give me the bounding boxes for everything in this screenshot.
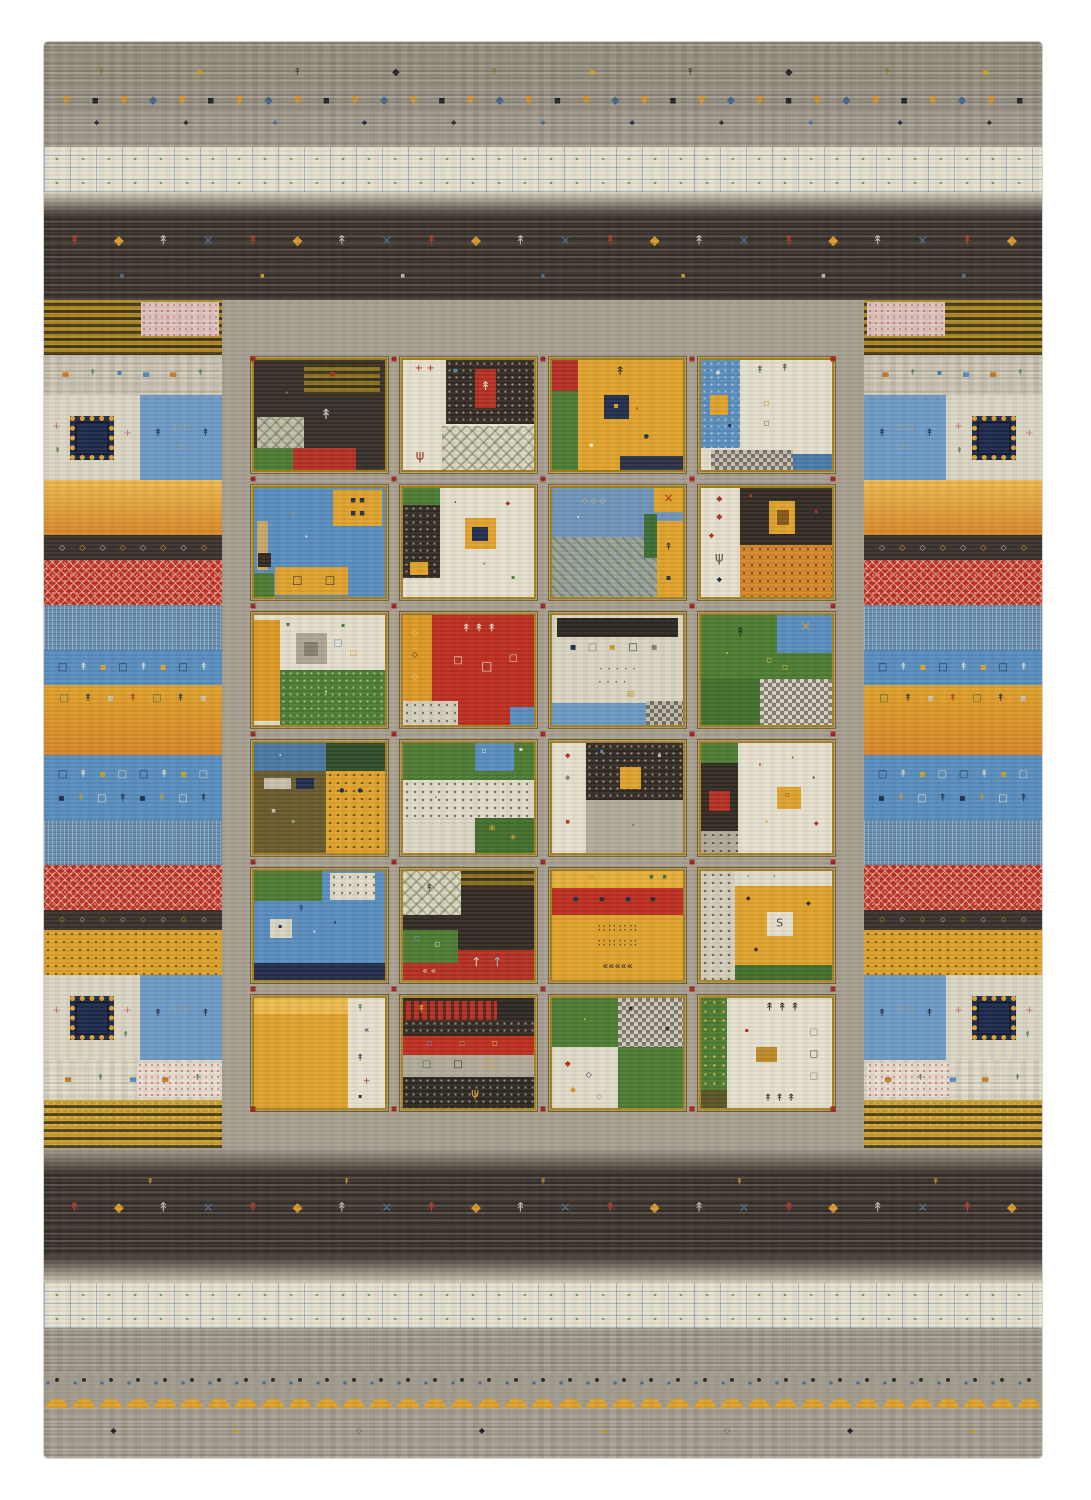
cell-patch bbox=[410, 562, 428, 575]
motif-glyph: ↟ bbox=[925, 429, 933, 439]
motif-glyph: ↟ bbox=[605, 234, 616, 247]
cell-patch bbox=[701, 871, 735, 981]
motif-glyph: ▪ bbox=[233, 1427, 238, 1435]
motif-glyph: + bbox=[123, 1006, 131, 1016]
cell-patch bbox=[254, 573, 274, 597]
motif-glyph: ◇ bbox=[899, 544, 905, 552]
rug-cell-r5c4: S··◆◆◆ bbox=[699, 869, 834, 983]
motif-glyph: ◆ bbox=[471, 234, 481, 247]
motif-glyph: ↟ bbox=[122, 1031, 129, 1039]
cell-motif: ↟ bbox=[480, 380, 490, 392]
rug-band bbox=[864, 560, 1042, 605]
motif-glyph: ◇ bbox=[100, 544, 106, 552]
cell-motif: + bbox=[363, 1077, 371, 1086]
motif-glyph: ↟ bbox=[158, 234, 169, 247]
motif-glyph: ▼ bbox=[178, 95, 186, 106]
motif-glyph: ▼ bbox=[409, 95, 417, 106]
motif-glyph: × bbox=[917, 1201, 928, 1214]
motif-glyph: ◇ bbox=[181, 917, 186, 924]
motif-glyph: ↟ bbox=[200, 663, 208, 673]
cell-motif: ▪ bbox=[666, 574, 671, 582]
cell-motif: ▪ bbox=[511, 575, 515, 581]
motif-glyph: ↟ bbox=[158, 794, 166, 804]
cell-motif: ◆ bbox=[565, 753, 570, 760]
cell-motif: · bbox=[583, 1013, 587, 1027]
grid-corner-dot bbox=[831, 357, 836, 362]
cell-motif: □ bbox=[481, 660, 492, 672]
cell-patch bbox=[258, 553, 271, 566]
motif-glyph: × bbox=[560, 234, 571, 247]
motif-glyph: ↟ bbox=[949, 694, 957, 704]
band-accent-patch bbox=[867, 1062, 949, 1097]
motif-glyph: ▄ bbox=[170, 369, 176, 377]
motif-glyph: ◇ bbox=[981, 917, 986, 924]
grid-corner-dot bbox=[541, 604, 546, 609]
cell-patch bbox=[701, 998, 727, 1090]
motif-glyph: × bbox=[203, 1201, 214, 1214]
rug-band: ▄↟▄▄↟ bbox=[864, 1060, 1042, 1100]
motif-glyph: ∷ bbox=[179, 443, 185, 453]
cell-motif: ▪ bbox=[625, 896, 631, 905]
cell-motif: ◆ bbox=[570, 1086, 576, 1094]
rug-band: □↟▪□↟▪□↟ bbox=[44, 650, 222, 685]
motif-glyph: ↟ bbox=[1017, 369, 1024, 377]
motif-glyph: □ bbox=[972, 694, 981, 704]
motif-glyph: ↟ bbox=[201, 1009, 209, 1019]
rug-cell-r2c2: ◆·▪· bbox=[401, 486, 536, 600]
motif-glyph: ◆ bbox=[362, 119, 367, 126]
cell-motif: ▪ bbox=[814, 509, 818, 515]
motif-glyph: ◆ bbox=[958, 95, 966, 106]
cell-motif: □ bbox=[809, 1051, 818, 1060]
motif-glyph: □ bbox=[152, 694, 161, 704]
motif-glyph: ◇ bbox=[1021, 917, 1026, 924]
motif-glyph: ▪ bbox=[117, 369, 122, 377]
cell-patch bbox=[403, 1077, 534, 1108]
cell-patch bbox=[740, 545, 832, 598]
motif-glyph: ▄ bbox=[990, 369, 996, 377]
rug-band bbox=[44, 865, 222, 910]
cell-motif: ↟ ↟ ↟ bbox=[764, 1094, 796, 1104]
cell-motif: ▪ bbox=[453, 367, 458, 374]
motif-glyph: ↟ bbox=[69, 234, 80, 247]
motif-glyph: ◆ bbox=[114, 234, 124, 247]
motif-glyph: ↟ bbox=[160, 770, 168, 780]
cell-motif: ↟ bbox=[356, 1054, 364, 1063]
cell-patch bbox=[760, 679, 832, 725]
motif-glyph: ↟ bbox=[336, 234, 347, 247]
rug-band bbox=[44, 147, 1042, 192]
rug-left-column: ▄↟▪▄▄↟+↟+↟↟∷ ∷∷◇◇◇◇◇◇◇◇□↟▪□↟▪□↟□↟▪↟□↟▪□↟… bbox=[44, 300, 222, 1148]
rug-top-border: ↟▪↟◆↟▪↟◆↟▪▼▪▼◆▼▪▼◆▼▪▼◆▼▪▼◆▼▪▼◆▼▪▼◆▼▪▼◆▼▪… bbox=[44, 42, 1042, 300]
rug-band bbox=[864, 300, 1042, 355]
motif-glyph: ◇ bbox=[960, 544, 966, 552]
motif-glyph: □ bbox=[938, 770, 947, 780]
cell-motif: ◆ bbox=[709, 532, 714, 539]
cell-motif: ▫ bbox=[492, 1040, 498, 1049]
grid-corner-dot bbox=[251, 732, 256, 737]
motif-glyph: ↟ bbox=[77, 794, 85, 804]
cell-motif: □ bbox=[292, 574, 302, 585]
cell-patch bbox=[403, 780, 534, 817]
motif-glyph: + bbox=[1025, 429, 1033, 439]
rug-band bbox=[44, 605, 222, 650]
cell-motif: ↟ ↟ ↟ bbox=[765, 1002, 800, 1013]
rug-band bbox=[864, 820, 1042, 865]
cell-motif: ▫ bbox=[414, 934, 420, 943]
cell-motif: · bbox=[324, 684, 329, 700]
rug-band bbox=[44, 480, 222, 535]
medallion-panel: ++↟ bbox=[946, 975, 1042, 1060]
grid-corner-dot bbox=[392, 357, 397, 362]
motif-glyph: ▼ bbox=[929, 95, 937, 106]
motif-glyph: ↟ bbox=[176, 694, 184, 704]
cell-patch bbox=[403, 488, 440, 506]
cell-motif: ψ bbox=[715, 551, 724, 564]
motif-glyph: □ bbox=[118, 663, 127, 673]
motif-row: □↟▪□↟▪□↟ bbox=[44, 663, 222, 673]
motif-glyph: ↟ bbox=[343, 1178, 351, 1187]
grid-corner-dot bbox=[831, 476, 836, 481]
motif-glyph: ◇ bbox=[181, 544, 187, 552]
motif-glyph: ▼ bbox=[235, 95, 243, 106]
cell-motif: ∷ ∷ ∷ ∷ bbox=[598, 938, 636, 949]
cell-motif: ≋ bbox=[626, 689, 635, 700]
rug-cell-r5c1: ▪··↟ bbox=[252, 869, 387, 983]
cell-motif: ● bbox=[339, 788, 344, 794]
grid-corner-dot bbox=[392, 987, 397, 992]
grid-corner-dot bbox=[831, 732, 836, 737]
motif-glyph: ↟ bbox=[878, 1009, 886, 1019]
motif-glyph: × bbox=[381, 234, 392, 247]
motif-glyph: ∷ ∷ bbox=[174, 1006, 190, 1016]
cell-patch bbox=[646, 701, 683, 725]
motif-glyph: ↟ bbox=[736, 1178, 744, 1187]
rug-band: ◇◇◇◇◇◇◇◇ bbox=[44, 910, 222, 930]
cell-motif: ▫ bbox=[782, 663, 788, 672]
motif-glyph: ◇ bbox=[140, 544, 146, 552]
cell-motif: ▫ bbox=[648, 1015, 653, 1022]
medallion-band: +↟+↟↟∷ ∷∷ bbox=[44, 395, 222, 480]
motif-row: ▪▪▪▪▪▪▪ bbox=[44, 273, 1042, 280]
motif-row: □↟▪□□↟▪□ bbox=[44, 770, 222, 780]
motif-glyph: ↟ bbox=[197, 369, 204, 377]
navy-square-medallion bbox=[70, 416, 114, 460]
cell-patch bbox=[510, 707, 534, 725]
motif-glyph: ◇ bbox=[920, 917, 925, 924]
motif-glyph: ◆ bbox=[987, 119, 992, 126]
motif-glyph: ◇ bbox=[1021, 544, 1027, 552]
motif-row: ▪↟□↟▪↟□↟ bbox=[864, 794, 1042, 804]
motif-glyph: □ bbox=[178, 663, 187, 673]
motif-glyph: ↟ bbox=[79, 663, 87, 673]
rug-band: □↟▪□↟▪□↟ bbox=[864, 650, 1042, 685]
cell-motif: ▪ bbox=[286, 622, 290, 628]
motif-glyph: ◆ bbox=[540, 119, 545, 126]
cell-motif: · bbox=[291, 507, 296, 523]
motif-glyph: ◆ bbox=[727, 95, 735, 106]
cell-motif: · bbox=[811, 770, 816, 786]
cell-patch bbox=[620, 456, 683, 469]
cell-motif: · bbox=[576, 511, 580, 525]
motif-glyph: ◆ bbox=[650, 1201, 660, 1214]
motif-glyph: + bbox=[954, 422, 962, 432]
motif-glyph: ↟ bbox=[336, 1201, 347, 1214]
rug-cell-r3c2: ↟ ↟ ↟□□□◇◇◇ bbox=[401, 613, 536, 727]
image-caption: Photograph of a hand-knotted wool Gabbeh… bbox=[0, 0, 1, 1]
motif-glyph: ↟ bbox=[200, 794, 208, 804]
motif-glyph: ◆ bbox=[1007, 234, 1017, 247]
rug-band: □↟▪□□↟▪□▪↟□↟▪↟□↟ bbox=[864, 755, 1042, 820]
rug-band: ◇◇◇◇◇◇◇◇ bbox=[44, 535, 222, 560]
cell-motif: ↟ bbox=[425, 883, 434, 894]
motif-glyph: □ bbox=[998, 663, 1007, 673]
motif-glyph: ↟ bbox=[248, 1201, 259, 1214]
rug-cell-r2c4: ◆◆◆ψ◆▪▪ bbox=[699, 486, 834, 600]
cell-motif: ◇ bbox=[412, 673, 418, 681]
cell-patch bbox=[472, 527, 488, 541]
motif-glyph: ▪ bbox=[937, 369, 942, 377]
rug-patchwork-grid: ↟▪·↟++ψ▪▪↟●●·↟↟▫▫▪▪▪ ▪▪ ▪□□··◆·▪·×◇ ◇ ◇↟… bbox=[252, 358, 834, 1110]
motif-row: □↟▪□↟▪□↟ bbox=[864, 663, 1042, 673]
motif-glyph: ▼ bbox=[640, 95, 648, 106]
cell-patch bbox=[293, 448, 356, 470]
grid-corner-dot bbox=[690, 859, 695, 864]
cell-motif: · bbox=[757, 757, 762, 773]
rug-band bbox=[44, 1328, 1042, 1373]
cell-motif: ◆ bbox=[746, 896, 751, 902]
motif-glyph: ◆ bbox=[392, 68, 400, 78]
cell-patch bbox=[254, 448, 293, 470]
grid-corner-dot bbox=[541, 732, 546, 737]
motif-glyph: ↟ bbox=[686, 68, 694, 78]
motif-glyph: ↟ bbox=[1014, 1074, 1021, 1082]
cell-motif: ▪ bbox=[570, 643, 577, 653]
cell-motif: ▪ bbox=[749, 493, 753, 499]
grid-corner-dot bbox=[690, 1107, 695, 1112]
rug-cell-r6c3: ◆◇◆◇▪▫▪· bbox=[550, 996, 685, 1110]
cell-motif: ◆ bbox=[814, 821, 819, 827]
motif-glyph: ▪ bbox=[107, 694, 114, 704]
cell-motif: · bbox=[635, 401, 640, 417]
motif-glyph: □ bbox=[97, 794, 106, 804]
cell-patch bbox=[620, 767, 641, 789]
motif-glyph: ↟ bbox=[139, 663, 147, 673]
rug-band: ◇◇◇◇◇◇◇◇ bbox=[864, 910, 1042, 930]
motif-glyph: ↟ bbox=[883, 68, 891, 78]
cell-patch bbox=[701, 1090, 727, 1108]
motif-glyph: □ bbox=[178, 794, 187, 804]
motif-glyph: ↟ bbox=[129, 694, 137, 704]
grid-corner-dot bbox=[831, 1107, 836, 1112]
motif-glyph: ↟ bbox=[84, 694, 92, 704]
cell-motif: ● bbox=[589, 443, 593, 448]
motif-glyph: ◆ bbox=[611, 95, 619, 106]
motif-glyph: ▼ bbox=[525, 95, 533, 106]
cell-motif: ↟ bbox=[756, 366, 764, 376]
rug-band: □↟▪↟□↟▪ bbox=[864, 685, 1042, 755]
motif-glyph: □ bbox=[917, 794, 926, 804]
cell-patch bbox=[552, 360, 578, 391]
cell-motif: ψ bbox=[471, 1087, 479, 1099]
motif-glyph: ▪ bbox=[139, 794, 146, 804]
rug-band: ◇◇◇◇◇◇◇◇ bbox=[864, 535, 1042, 560]
motif-row: ↟▪↟◆↟▪↟◆↟▪ bbox=[44, 68, 1042, 78]
cell-patch bbox=[552, 391, 578, 470]
motif-glyph: □ bbox=[959, 770, 968, 780]
cell-motif: ▪ bbox=[341, 623, 345, 629]
cell-patch bbox=[304, 364, 380, 395]
motif-glyph: ▪ bbox=[878, 794, 885, 804]
motif-glyph: ▪ bbox=[196, 68, 203, 78]
cell-motif: ▫ bbox=[434, 941, 440, 950]
cell-motif: + bbox=[415, 364, 423, 374]
grid-corner-dot bbox=[251, 604, 256, 609]
motif-row: ◇◇◇◇◇◇◇◇ bbox=[864, 917, 1042, 924]
cell-motif: + bbox=[426, 364, 434, 374]
motif-glyph: □ bbox=[938, 663, 947, 673]
grid-corner-dot bbox=[831, 604, 836, 609]
motif-glyph: ↟ bbox=[293, 68, 301, 78]
cell-motif: ◆ bbox=[754, 947, 759, 953]
motif-row: ◇◇◇◇◇◇◇◇ bbox=[44, 544, 222, 552]
motif-glyph: ▪ bbox=[1000, 770, 1007, 780]
grid-corner-dot bbox=[251, 859, 256, 864]
cell-motif: ▪ bbox=[728, 423, 732, 429]
cell-patch bbox=[280, 670, 385, 725]
grid-corner-dot bbox=[251, 476, 256, 481]
medallion-band: ++↟↟↟∷ ∷ bbox=[44, 975, 222, 1060]
cell-patch bbox=[644, 514, 657, 558]
cell-motif: · bbox=[790, 750, 795, 766]
motif-glyph: ▼ bbox=[120, 95, 128, 106]
cell-motif: ▪ ▪ bbox=[350, 496, 365, 505]
motif-glyph: ▼ bbox=[62, 95, 70, 106]
motif-glyph: ◆ bbox=[110, 1427, 116, 1435]
motif-glyph: ↟ bbox=[872, 234, 883, 247]
grid-corner-dot bbox=[251, 357, 256, 362]
rug-band bbox=[44, 1373, 1042, 1408]
cell-motif: · bbox=[725, 647, 729, 661]
grid-corner-dot bbox=[541, 476, 546, 481]
motif-glyph: ◇ bbox=[1001, 544, 1007, 552]
motif-glyph: ↟ bbox=[978, 794, 986, 804]
cell-motif: ◇ ◇ ◇ bbox=[582, 497, 606, 505]
cell-motif: ▪ bbox=[330, 371, 336, 380]
motif-glyph: ▪ bbox=[970, 1427, 975, 1435]
motif-glyph: ◇ bbox=[356, 1427, 362, 1435]
medallion-panel: +↟+ bbox=[946, 395, 1042, 480]
motif-glyph: □ bbox=[58, 663, 67, 673]
motif-glyph: ↟ bbox=[89, 369, 96, 377]
rug-band bbox=[44, 1148, 1042, 1173]
cell-patch bbox=[254, 871, 322, 902]
motif-glyph: □ bbox=[59, 694, 68, 704]
motif-glyph: ◇ bbox=[940, 917, 945, 924]
motif-glyph: ◆ bbox=[897, 119, 902, 126]
motif-glyph: ◆ bbox=[1007, 1201, 1017, 1214]
motif-glyph: ◆ bbox=[380, 95, 388, 106]
motif-glyph: ◇ bbox=[879, 544, 885, 552]
motif-glyph: ↟ bbox=[69, 1201, 80, 1214]
cell-patch bbox=[254, 998, 348, 1013]
motif-glyph: ◇ bbox=[980, 544, 986, 552]
grid-corner-dot bbox=[541, 859, 546, 864]
motif-row: □↟▪↟□↟▪ bbox=[864, 694, 1042, 704]
motif-glyph: ◇ bbox=[161, 917, 166, 924]
rug-band: ▄↟▄▄↟ bbox=[44, 1060, 222, 1100]
cell-motif: ««««« bbox=[602, 962, 633, 972]
cell-motif: ▫ bbox=[482, 747, 487, 755]
motif-glyph: ▪ bbox=[919, 770, 926, 780]
cell-motif: ▫ bbox=[459, 1040, 465, 1049]
motif-glyph: ◆ bbox=[847, 1427, 853, 1435]
rug-band: ▄↟▪▄▄↟ bbox=[44, 355, 222, 395]
cell-motif: ▪ bbox=[745, 1028, 749, 1034]
motif-glyph: ↟ bbox=[939, 794, 947, 804]
grid-corner-dot bbox=[392, 1107, 397, 1112]
motif-glyph: × bbox=[917, 234, 928, 247]
grid-corner-dot bbox=[690, 604, 695, 609]
grid-corner-dot bbox=[392, 476, 397, 481]
motif-glyph: ↟ bbox=[248, 234, 259, 247]
motif-glyph: × bbox=[738, 234, 749, 247]
cell-patch bbox=[254, 743, 326, 772]
rug-cell-r4c3: ▪▪◆◆▪· bbox=[550, 741, 685, 855]
grid-corner-dot bbox=[251, 1107, 256, 1112]
motif-glyph: ▼ bbox=[582, 95, 590, 106]
cell-motif: ▫ bbox=[763, 419, 770, 429]
motif-glyph: ↟ bbox=[694, 1201, 705, 1214]
cell-motif: □ bbox=[485, 1060, 494, 1070]
cell-patch bbox=[557, 618, 678, 638]
motif-glyph: ▪ bbox=[982, 68, 989, 78]
motif-row: □↟▪↟□↟▪ bbox=[44, 694, 222, 704]
motif-glyph: ◆ bbox=[630, 119, 635, 126]
rug-band: ◆◆◆◆◆◆◆◆◆◆◆ bbox=[44, 112, 1042, 147]
gabbeh-rug: ↟▪↟◆↟▪↟◆↟▪▼▪▼◆▼▪▼◆▼▪▼◆▼▪▼◆▼▪▼◆▼▪▼◆▼▪▼◆▼▪… bbox=[44, 42, 1042, 1458]
motif-glyph: ▪ bbox=[1020, 694, 1027, 704]
motif-glyph: ↟ bbox=[980, 770, 988, 780]
cell-patch bbox=[275, 567, 348, 596]
cell-motif: ▪ bbox=[573, 896, 579, 905]
cell-motif: · bbox=[304, 529, 309, 545]
motif-glyph: ↟ bbox=[154, 1009, 162, 1019]
motif-glyph: ▪ bbox=[260, 273, 265, 280]
motif-glyph: ◆ bbox=[808, 119, 813, 126]
cell-motif: ▪ bbox=[271, 807, 276, 814]
cell-motif: ↟ bbox=[664, 543, 672, 553]
cell-motif: ▪ bbox=[649, 874, 654, 881]
navy-square-medallion bbox=[70, 996, 114, 1040]
motif-glyph: ↟ bbox=[904, 694, 912, 704]
motif-glyph: ↟ bbox=[956, 447, 963, 455]
navy-square-medallion bbox=[972, 996, 1016, 1040]
cell-patch bbox=[348, 998, 385, 1108]
motif-glyph: ◇ bbox=[900, 917, 905, 924]
motif-glyph: × bbox=[381, 1201, 392, 1214]
cell-motif: ↟ bbox=[356, 1005, 364, 1014]
rug-band bbox=[864, 1100, 1042, 1148]
grid-corner-dot bbox=[831, 859, 836, 864]
motif-glyph: ◆ bbox=[272, 119, 277, 126]
motif-glyph: ▄ bbox=[143, 369, 149, 377]
rug-band bbox=[864, 865, 1042, 910]
cell-motif: ◇ bbox=[412, 629, 418, 637]
motif-row: ▄↟▪▄▄↟ bbox=[44, 369, 222, 377]
cell-motif: ▫ bbox=[766, 657, 772, 666]
cell-motif: □ bbox=[588, 643, 597, 653]
